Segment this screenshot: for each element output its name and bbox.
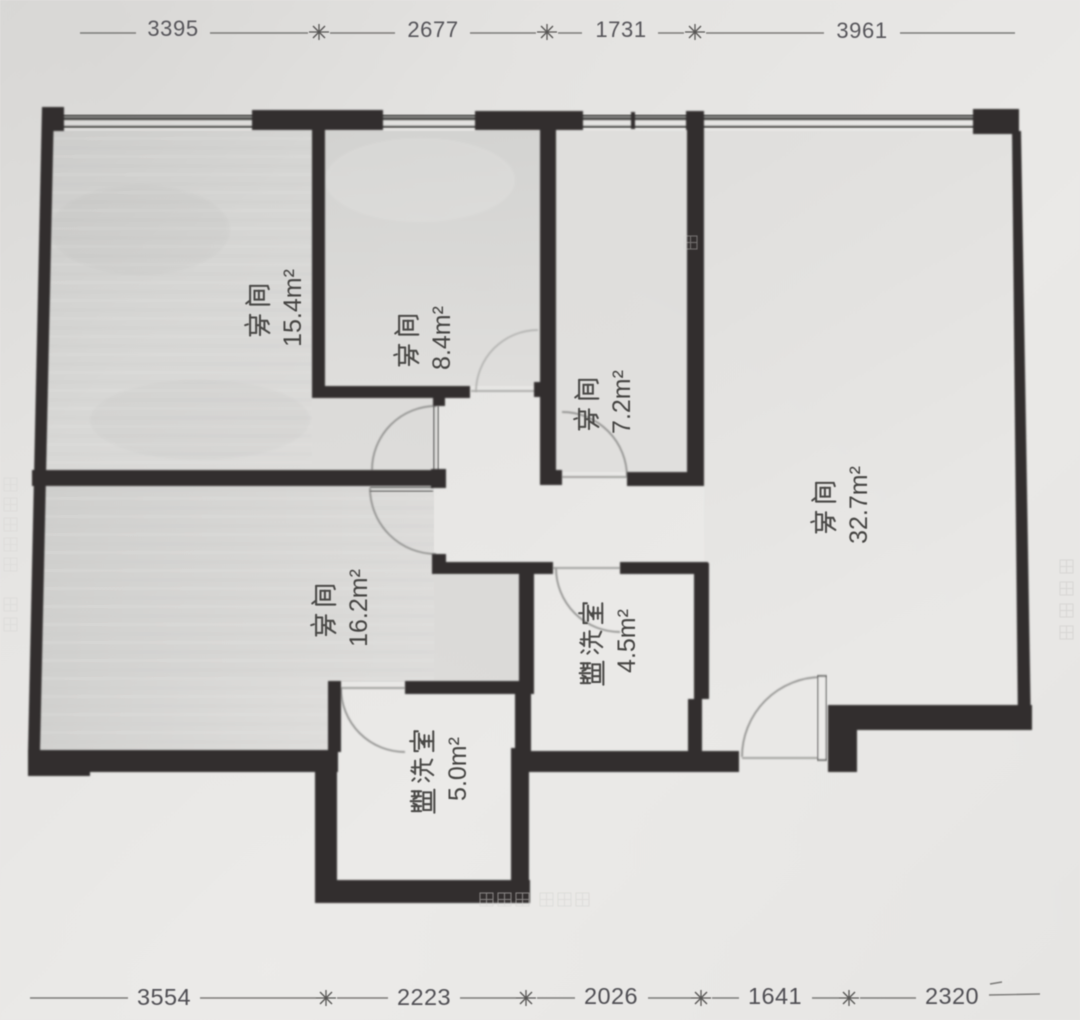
svg-text:1731: 1731 bbox=[595, 17, 646, 42]
svg-text:3554: 3554 bbox=[137, 984, 191, 1010]
svg-text:3395: 3395 bbox=[147, 16, 198, 41]
svg-text:7.2m²: 7.2m² bbox=[608, 370, 636, 434]
svg-text:1641: 1641 bbox=[748, 983, 802, 1009]
svg-text:15.4m²: 15.4m² bbox=[279, 269, 307, 347]
svg-text:5.0m²: 5.0m² bbox=[444, 737, 472, 801]
svg-text:2320: 2320 bbox=[925, 983, 979, 1009]
svg-text:2677: 2677 bbox=[407, 17, 458, 42]
svg-text:2026: 2026 bbox=[584, 983, 638, 1009]
svg-text:32.7m²: 32.7m² bbox=[845, 466, 873, 544]
svg-text:8.4m²: 8.4m² bbox=[428, 306, 456, 370]
svg-text:3961: 3961 bbox=[836, 18, 887, 43]
svg-text:2223: 2223 bbox=[397, 984, 451, 1010]
svg-text:4.5m²: 4.5m² bbox=[613, 609, 641, 673]
svg-text:16.2m²: 16.2m² bbox=[345, 569, 373, 647]
